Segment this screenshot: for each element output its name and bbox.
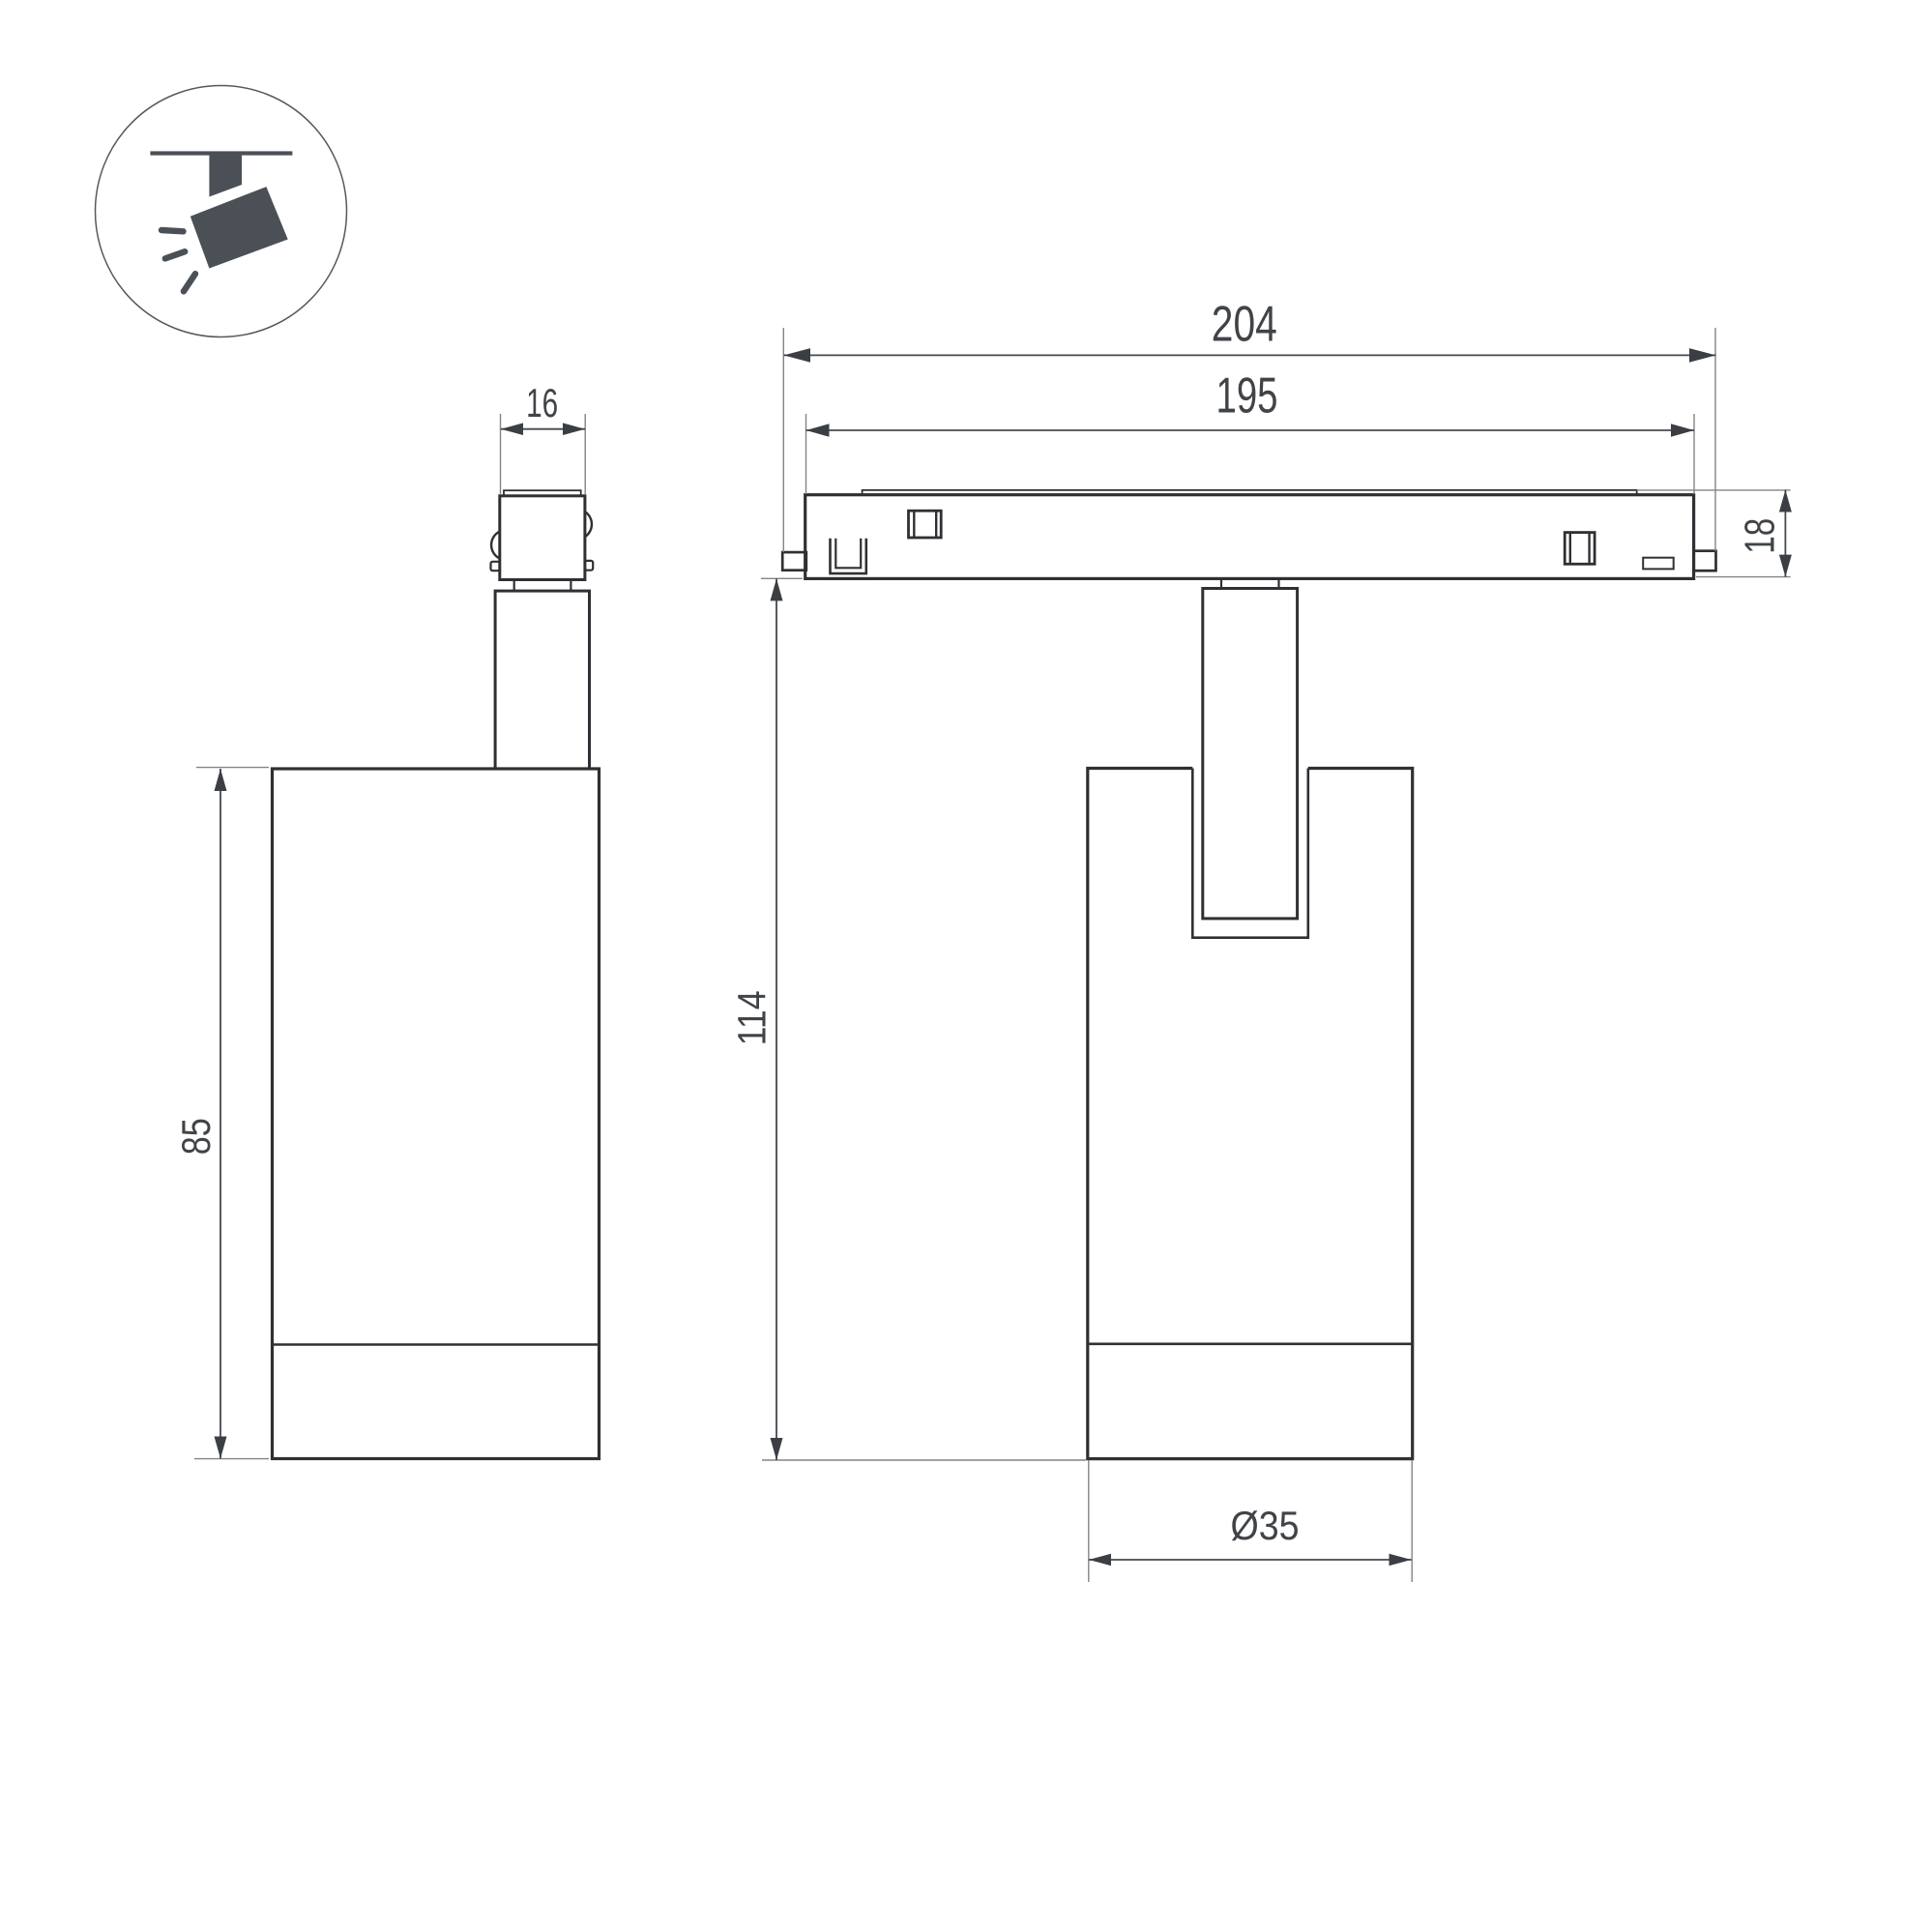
svg-text:85: 85 bbox=[173, 1118, 219, 1155]
svg-text:195: 195 bbox=[1216, 368, 1278, 424]
svg-text:204: 204 bbox=[1212, 296, 1277, 352]
svg-text:16: 16 bbox=[526, 380, 558, 425]
svg-text:114: 114 bbox=[729, 990, 774, 1045]
svg-text:18: 18 bbox=[1737, 518, 1784, 554]
svg-text:Ø35: Ø35 bbox=[1231, 1503, 1300, 1548]
